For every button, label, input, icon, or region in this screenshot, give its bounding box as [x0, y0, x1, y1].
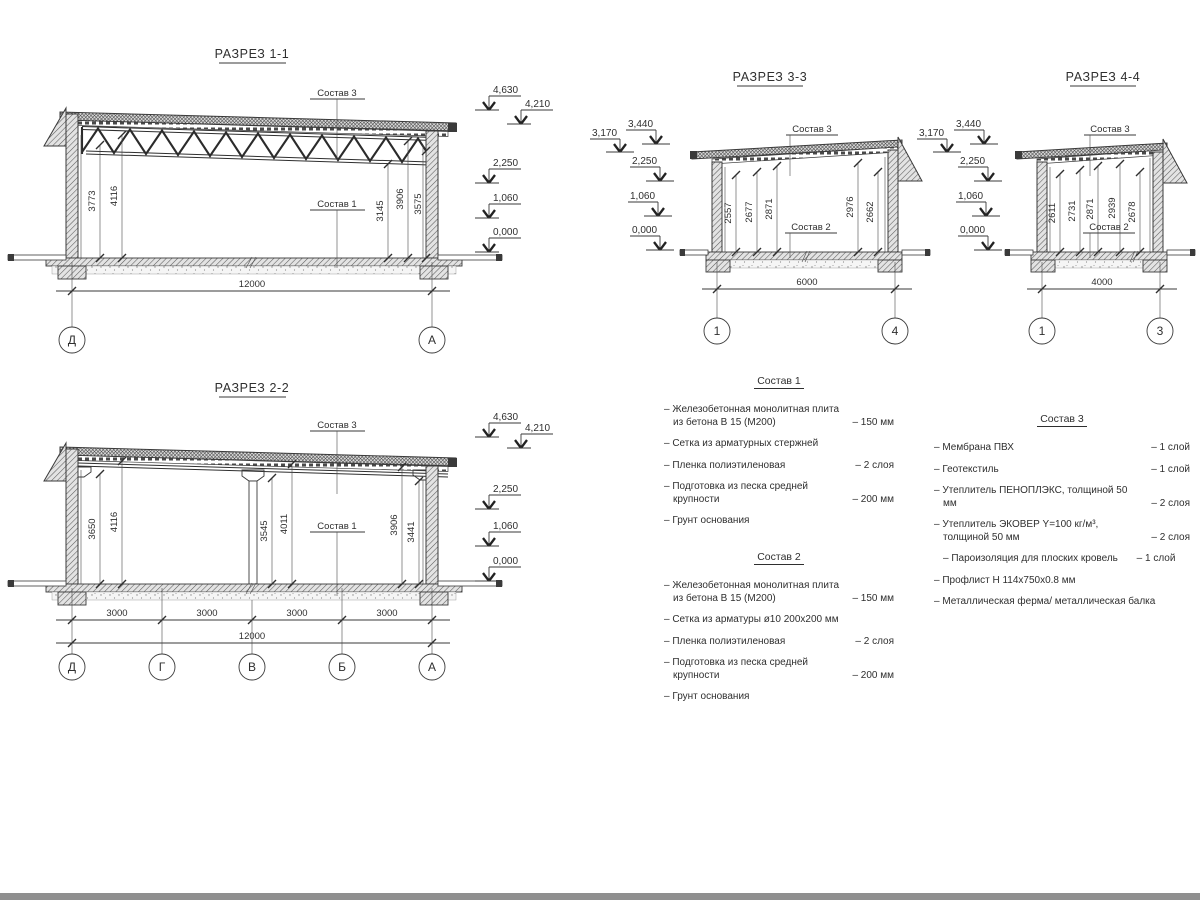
elevation-label: 1,060 — [493, 521, 518, 532]
composition-title: Состав 1 — [664, 375, 894, 389]
elevation-label: 3,170 — [919, 128, 944, 139]
layer-ref-label: Состав 3 — [317, 88, 356, 99]
layer-ref-label: Состав 3 — [317, 420, 356, 431]
dim-label: 3000 — [106, 608, 127, 619]
dim-label: 3441 — [406, 521, 417, 542]
dim-label: 4116 — [109, 186, 120, 206]
axis-markers: 1 4 — [704, 318, 908, 344]
elevation-marks: 3,170 3,440 2,250 1,060 0,000 — [590, 119, 674, 250]
composition-list-2: Состав 2 – Железобетонная монолитная пли… — [664, 551, 894, 713]
elevation-label: 4,210 — [525, 423, 550, 434]
composition-item: – Профлист Н 114x750x0.8 мм — [934, 575, 1190, 588]
composition-list-3: Состав 3 – Мембрана ПВХ – 1 слой – Геоте… — [934, 413, 1190, 618]
elevation-label: 0,000 — [632, 225, 657, 236]
item-qty: – 150 мм — [852, 417, 894, 430]
item-text: – Мембрана ПВХ — [934, 442, 1143, 455]
composition-item: – Утеплитель ПЕНОПЛЭКС, толщиной 50 мм –… — [934, 485, 1190, 510]
elevation-label: 0,000 — [493, 227, 518, 238]
composition-item: – Железобетонная монолитная плита из бет… — [664, 404, 894, 429]
dim-label: 2662 — [865, 201, 876, 222]
elevation-marks: 3,170 3,440 2,250 1,060 0,000 — [917, 119, 1002, 250]
item-text: – Профлист Н 114x750x0.8 мм — [934, 575, 1182, 588]
composition-item: – Грунт основания — [664, 515, 894, 528]
dim-label: 6000 — [796, 277, 817, 288]
axis-label: 1 — [714, 324, 721, 338]
dim-label: 12000 — [239, 279, 265, 290]
section-2-2: РАЗРЕЗ 2-2 — [8, 381, 553, 680]
item-text: – Утеплитель ПЕНОПЛЭКС, толщиной 50 мм — [934, 485, 1143, 510]
dim-label: 3575 — [413, 193, 424, 214]
item-text: – Железобетонная монолитная плита из бет… — [664, 404, 844, 429]
section-title: РАЗРЕЗ 1-1 — [215, 47, 290, 61]
elevation-label: 2,250 — [960, 156, 985, 167]
composition-item: – Подготовка из песка средней крупности … — [664, 657, 894, 682]
elevation-label: 3,440 — [628, 119, 653, 130]
composition-item: – Утеплитель ЭКОВЕР Y=100 кг/м³, толщино… — [934, 519, 1190, 544]
composition-title: Состав 3 — [934, 413, 1190, 427]
item-qty: – 150 мм — [852, 593, 894, 606]
axis-label: А — [428, 333, 436, 347]
item-text: – Сетка из арматурных стержней — [664, 438, 886, 451]
composition-item: – Геотекстиль – 1 слой — [934, 464, 1190, 477]
roof — [690, 140, 902, 164]
axis-markers: 1 3 — [1029, 318, 1173, 344]
section-title: РАЗРЕЗ 2-2 — [215, 381, 290, 395]
floor-slab — [8, 580, 502, 605]
elevation-label: 2,250 — [493, 484, 518, 495]
composition-item: – Мембрана ПВХ – 1 слой — [934, 442, 1190, 455]
axis-label: А — [428, 660, 436, 674]
composition-item: – Железобетонная монолитная плита из бет… — [664, 580, 894, 605]
layer-ref-label: Состав 3 — [792, 124, 831, 135]
dim-label: 2678 — [1127, 201, 1138, 222]
floor-slab — [1005, 249, 1195, 272]
elevation-label: 3,170 — [592, 128, 617, 139]
item-qty: – 1 слой — [1151, 442, 1190, 455]
elevation-label: 2,250 — [493, 158, 518, 169]
layer-ref-label: Состав 1 — [317, 521, 356, 532]
composition-item: – Пленка полиэтиленовая – 2 слоя — [664, 460, 894, 473]
dim-label: 4116 — [109, 512, 120, 532]
dim-label: 2871 — [764, 198, 775, 219]
dim-label: 12000 — [239, 631, 265, 642]
composition-item: – Пароизоляция для плоских кровель – 1 с… — [934, 553, 1190, 566]
elevation-label: 1,060 — [630, 191, 655, 202]
layer-ref-label: Состав 2 — [1089, 222, 1128, 233]
dim-label: 2939 — [1107, 197, 1118, 218]
elevation-label: 0,000 — [960, 225, 985, 236]
dim-label: 3000 — [196, 608, 217, 619]
section-3-3: РАЗРЕЗ 3-3 3,170 3,440 2,250 1,060 0,000 — [590, 70, 930, 344]
axis-label: Д — [68, 333, 76, 347]
axis-label: 3 — [1157, 324, 1164, 338]
dim-label: 3000 — [376, 608, 397, 619]
axis-label: В — [248, 660, 256, 674]
dim-label: 4011 — [279, 514, 290, 534]
elevation-marks: 4,630 4,210 2,250 1,060 0,000 — [475, 412, 553, 581]
composition-item: – Подготовка из песка средней крупности … — [664, 481, 894, 506]
item-text: – Грунт основания — [664, 691, 886, 704]
layer-labels: Состав 3 Состав 2 — [1083, 124, 1136, 258]
elevation-label: 1,060 — [493, 193, 518, 204]
item-qty: – 2 слоя — [855, 460, 894, 473]
dim-label: 3650 — [87, 518, 98, 539]
axis-label: Д — [68, 660, 76, 674]
item-text: – Подготовка из песка средней крупности — [664, 657, 844, 682]
dim-label: 2976 — [845, 196, 856, 217]
elevation-label: 3,440 — [956, 119, 981, 130]
elevation-label: 1,060 — [958, 191, 983, 202]
composition-title: Состав 2 — [664, 551, 894, 565]
drawing-sheet: { "page": { "background": "#ffffff", "li… — [0, 0, 1200, 900]
item-qty: – 2 слоя — [855, 636, 894, 649]
section-1-1: РАЗРЕЗ 1-1 — [8, 47, 553, 353]
item-qty: – 1 слой — [1137, 553, 1176, 564]
item-text: – Пленка полиэтиленовая — [664, 460, 847, 473]
elevation-label: 0,000 — [493, 556, 518, 567]
item-text: – Утеплитель ЭКОВЕР Y=100 кг/м³, толщино… — [934, 519, 1143, 544]
layer-ref-label: Состав 1 — [317, 199, 356, 210]
item-text: – Сетка из арматуры ø10 200x200 мм — [664, 614, 886, 627]
section-title: РАЗРЕЗ 4-4 — [1066, 70, 1141, 84]
layer-ref-label: Состав 3 — [1090, 124, 1129, 135]
item-qty: – 1 слой — [1151, 464, 1190, 477]
item-text: – Подготовка из песка средней крупности — [664, 481, 844, 506]
interior-dimensions: 2611 2731 2871 2939 2678 — [1047, 160, 1144, 256]
dim-label: 3000 — [286, 608, 307, 619]
axis-label: 4 — [892, 324, 899, 338]
item-text: – Металлическая ферма/ металлическая бал… — [934, 596, 1182, 609]
dim-label: 2557 — [723, 202, 734, 223]
axis-label: 1 — [1039, 324, 1046, 338]
axis-markers: Д Г В Б А — [59, 654, 445, 680]
elevation-label: 4,210 — [525, 99, 550, 110]
axis-label: Г — [159, 660, 166, 674]
item-text: – Геотекстиль — [934, 464, 1143, 477]
elevation-marks: 4,630 4,210 2,250 1,060 0,000 — [475, 85, 553, 252]
interior-dimensions: 3773 4116 3145 3906 3575 — [87, 131, 430, 262]
roof — [1015, 143, 1167, 164]
dim-label: 3545 — [259, 520, 270, 541]
dim-label: 3906 — [395, 188, 406, 209]
dim-label: 2871 — [1085, 198, 1096, 219]
elevation-label: 4,630 — [493, 412, 518, 423]
composition-item: – Грунт основания — [664, 691, 894, 704]
item-qty: – 200 мм — [852, 670, 894, 683]
elevation-label: 2,250 — [632, 156, 657, 167]
layer-labels: Состав 3 Состав 1 — [310, 420, 365, 596]
window-bottom-edge — [0, 893, 1200, 900]
composition-item: – Сетка из арматурных стержней — [664, 438, 894, 451]
dim-label: 2677 — [744, 201, 755, 222]
dim-label: 2611 — [1047, 203, 1058, 223]
composition-list-1: Состав 1 – Железобетонная монолитная пли… — [664, 375, 894, 537]
item-text: – Железобетонная монолитная плита из бет… — [664, 580, 844, 605]
interior-dimensions: 2557 2677 2871 2976 2662 — [723, 159, 882, 256]
item-qty: – 2 слоя — [1151, 498, 1190, 511]
item-qty: – 200 мм — [852, 494, 894, 507]
elevation-label: 4,630 — [493, 85, 518, 96]
composition-item: – Пленка полиэтиленовая – 2 слоя — [664, 636, 894, 649]
axis-label: Б — [338, 660, 346, 674]
axis-markers: Д А — [59, 327, 445, 353]
section-title: РАЗРЕЗ 3-3 — [733, 70, 808, 84]
dim-label: 3906 — [389, 514, 400, 535]
item-text: – Пленка полиэтиленовая — [664, 636, 847, 649]
item-text: – Пароизоляция для плоских кровель — [934, 553, 1118, 564]
item-qty: – 2 слоя — [1151, 532, 1190, 545]
dim-label: 4000 — [1091, 277, 1112, 288]
layer-labels: Состав 3 Состав 1 — [310, 88, 365, 268]
floor-slab — [8, 254, 502, 279]
dim-label: 3145 — [375, 200, 386, 221]
dim-label: 3773 — [87, 190, 98, 211]
composition-item: – Сетка из арматуры ø10 200x200 мм — [664, 614, 894, 627]
dim-label: 2731 — [1067, 200, 1078, 221]
floor-slab — [680, 249, 930, 272]
roof — [60, 447, 457, 477]
item-text: – Грунт основания — [664, 515, 886, 528]
section-4-4: РАЗРЕЗ 4-4 3,170 3,440 2,250 1,060 0,000 — [917, 70, 1195, 344]
layer-ref-label: Состав 2 — [791, 222, 830, 233]
composition-item: – Металлическая ферма/ металлическая бал… — [934, 596, 1190, 609]
